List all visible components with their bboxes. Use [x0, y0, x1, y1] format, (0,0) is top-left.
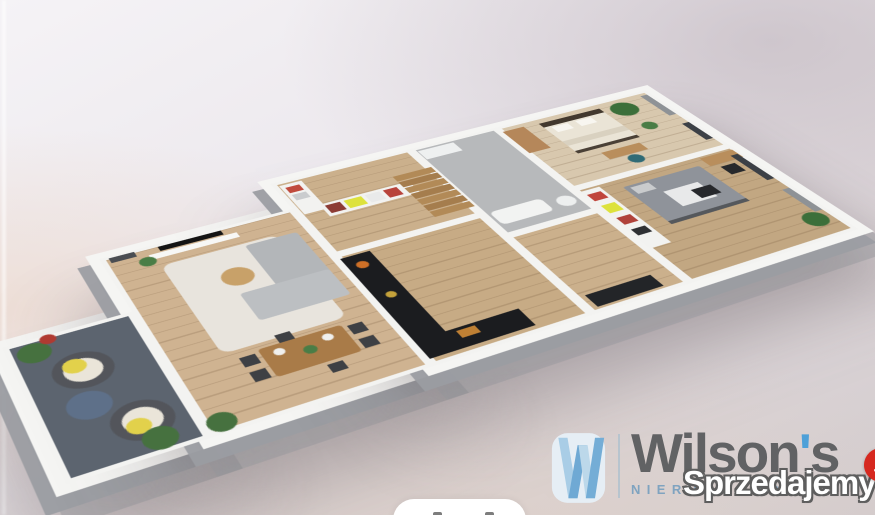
sprzedajemy-text: Sprzedajemy [683, 464, 875, 501]
sprzedajemy-watermark: Sprzedajemy .pl [683, 464, 875, 502]
listing-image: Wilson's NIERUCHOMOŚCI Sprzedajemy .pl [0, 0, 875, 515]
logo-divider [618, 434, 620, 498]
wilsons-w-icon [551, 431, 606, 505]
cutoff-pill-text [393, 499, 526, 515]
